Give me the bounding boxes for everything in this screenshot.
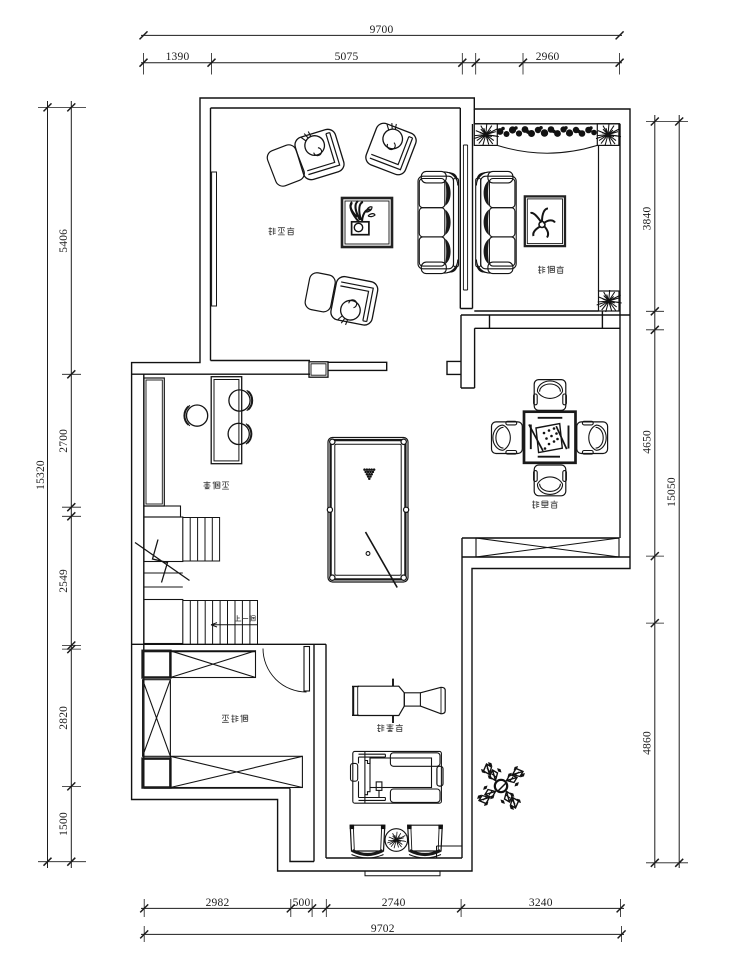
svg-text:500: 500 [293, 897, 311, 909]
svg-text:2740: 2740 [382, 897, 406, 909]
svg-text:15320: 15320 [35, 460, 47, 490]
svg-text:2960: 2960 [536, 51, 560, 63]
svg-text:15050: 15050 [666, 477, 678, 507]
svg-text:2820: 2820 [58, 706, 70, 730]
svg-text:1500: 1500 [58, 812, 70, 836]
svg-text:4650: 4650 [642, 430, 654, 454]
svg-text:5406: 5406 [58, 229, 70, 253]
svg-text:5075: 5075 [335, 51, 359, 63]
svg-text:2549: 2549 [58, 569, 70, 593]
svg-text:3240: 3240 [529, 897, 553, 909]
svg-text:9700: 9700 [370, 24, 394, 36]
svg-text:4860: 4860 [642, 731, 654, 755]
svg-text:2982: 2982 [206, 897, 230, 909]
svg-text:3840: 3840 [642, 207, 654, 231]
svg-text:1390: 1390 [166, 51, 190, 63]
svg-text:2700: 2700 [58, 429, 70, 453]
svg-text:9702: 9702 [371, 923, 395, 935]
